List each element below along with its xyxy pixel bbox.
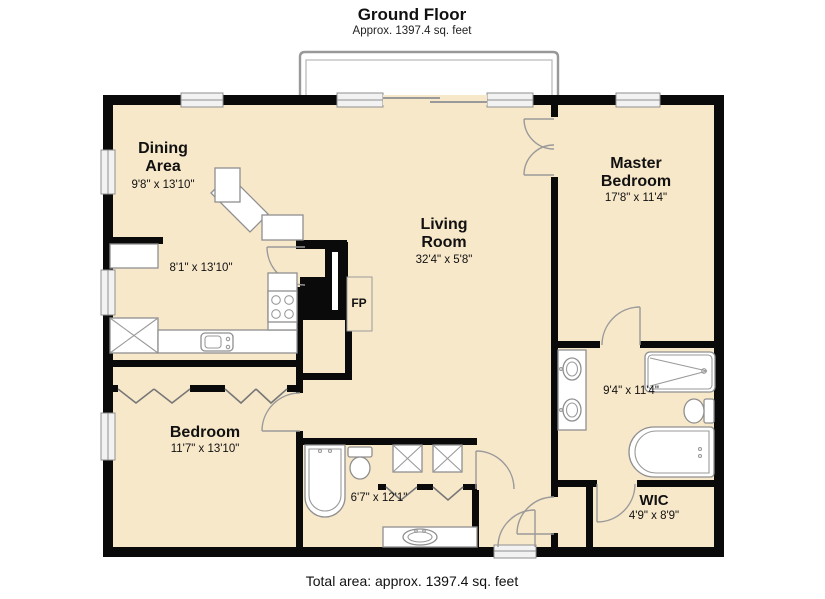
wall-wic-left xyxy=(586,487,593,547)
room-label-master-bedroom: Master Bedroom 17'8" x 11'4" xyxy=(601,155,671,204)
window-dining-top xyxy=(181,93,223,107)
closet-box-2 xyxy=(433,445,462,472)
wall-master-bedroom-bottom-1 xyxy=(558,341,600,348)
dining-name-line2: Area xyxy=(145,158,181,175)
double-vanity xyxy=(558,350,586,430)
window-living-top-left xyxy=(337,93,383,107)
wall-master-bath-bottom-1 xyxy=(558,480,597,487)
fireplace-label: FP xyxy=(351,296,366,310)
window-kitchen-left xyxy=(101,270,115,315)
window-master-bedroom-top xyxy=(616,93,660,107)
wall-living-master-3 xyxy=(551,348,558,497)
page-subtitle: Approx. 1397.4 sq. feet xyxy=(353,25,473,37)
closet-wall-seg-3 xyxy=(463,484,477,490)
fireplace-mass-lower xyxy=(300,277,325,320)
bedroom-dims: 11'7" x 13'10" xyxy=(171,443,240,455)
bathroom-dims: 6'7" x 12'1" xyxy=(351,492,408,504)
wall-outer-right xyxy=(714,95,724,557)
master-toilet xyxy=(684,399,714,423)
vanity xyxy=(383,527,477,547)
page-title: Ground Floor xyxy=(358,5,467,24)
wall-bedroom-top-2 xyxy=(190,385,225,392)
wic-name: WIC xyxy=(639,492,668,509)
fireplace-flue-slit xyxy=(332,252,338,310)
wall-bedroom-top-3 xyxy=(287,385,303,392)
window-bedroom-left xyxy=(101,413,115,460)
bathtub xyxy=(305,445,345,517)
kitchen-sink xyxy=(201,333,233,351)
master-bathtub xyxy=(629,427,714,477)
master-bedroom-name-line1: Master xyxy=(610,155,662,172)
wall-living-master-2 xyxy=(551,177,558,348)
refrigerator xyxy=(110,244,158,268)
stove xyxy=(268,291,297,322)
sliding-door-balcony xyxy=(383,95,487,105)
room-label-living: Living Room 32'4" x 5'8" xyxy=(416,216,473,266)
master-bedroom-dims: 17'8" x 11'4" xyxy=(605,192,667,204)
master-bedroom-name-line2: Bedroom xyxy=(601,173,671,190)
wic-dims: 4'9" x 8'9" xyxy=(629,510,679,522)
wall-master-bath-bottom-2 xyxy=(637,480,724,487)
bedroom-name: Bedroom xyxy=(170,424,240,441)
dishwasher xyxy=(110,318,158,353)
wall-bath-top xyxy=(303,438,477,445)
closet-box-1 xyxy=(393,445,422,472)
closet-wall-seg-1 xyxy=(378,484,386,490)
wall-dining-stub xyxy=(103,237,163,244)
wall-outer-bottom xyxy=(103,547,724,557)
master-bathroom-dims: 9'4" x 11'4" xyxy=(603,385,659,397)
window-dining-left xyxy=(101,150,115,194)
kitchen-dims: 8'1" x 13'10" xyxy=(169,262,232,274)
wall-living-master-1 xyxy=(551,104,558,117)
dining-name-line1: Dining xyxy=(138,140,188,157)
entry-threshold xyxy=(494,545,536,558)
room-label-bedroom: Bedroom 11'7" x 13'10" xyxy=(170,424,240,455)
wall-living-master-4 xyxy=(551,533,558,547)
wall-master-bedroom-bottom-2 xyxy=(640,341,724,348)
wall-bedroom-top-1 xyxy=(103,385,118,392)
window-living-top-right xyxy=(487,93,533,107)
dining-dims: 9'8" x 13'10" xyxy=(131,179,194,191)
wall-closet-top xyxy=(103,360,303,367)
balcony xyxy=(300,52,558,95)
living-name-line1: Living xyxy=(420,216,467,233)
total-area-caption: Total area: approx. 1397.4 sq. feet xyxy=(306,573,519,589)
living-dims: 32'4" x 5'8" xyxy=(416,254,473,266)
toilet xyxy=(348,447,372,479)
wall-pantry-bottom xyxy=(303,373,352,380)
living-name-line2: Room xyxy=(421,234,466,251)
wall-kitchen-right-lower xyxy=(296,431,303,547)
floor-plan: Ground Floor Approx. 1397.4 sq. feet xyxy=(0,0,825,599)
closet-wall-seg-2 xyxy=(417,484,433,490)
